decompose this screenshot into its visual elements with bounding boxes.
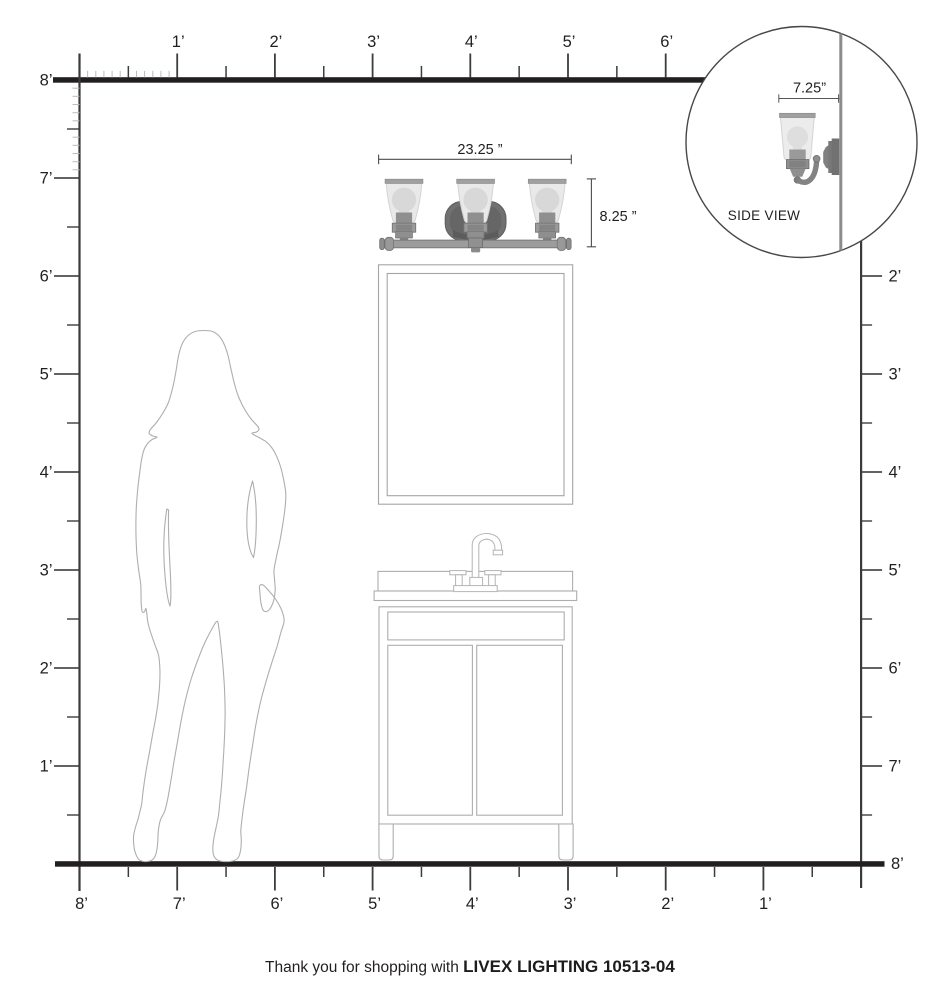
svg-text:2’: 2’ (40, 660, 53, 678)
svg-text:1’: 1’ (40, 758, 53, 776)
svg-text:7’: 7’ (173, 895, 186, 913)
svg-text:3’: 3’ (564, 895, 577, 913)
svg-text:4’: 4’ (40, 464, 53, 482)
svg-text:3’: 3’ (889, 366, 902, 384)
svg-text:6’: 6’ (40, 268, 53, 286)
svg-text:7.25”: 7.25” (793, 81, 826, 97)
svg-text:1’: 1’ (172, 33, 185, 51)
svg-text:SIDE VIEW: SIDE VIEW (728, 208, 800, 223)
svg-text:8’: 8’ (40, 72, 53, 90)
svg-text:4’: 4’ (889, 464, 902, 482)
svg-text:7’: 7’ (889, 758, 902, 776)
svg-text:2’: 2’ (661, 895, 674, 913)
svg-text:23.25 ”: 23.25 ” (457, 142, 502, 158)
svg-text:7’: 7’ (40, 170, 53, 188)
svg-text:3’: 3’ (367, 33, 380, 51)
svg-text:2’: 2’ (269, 33, 282, 51)
svg-text:Thank you for shopping with LI: Thank you for shopping with LIVEX LIGHTI… (265, 957, 675, 976)
svg-text:6’: 6’ (889, 660, 902, 678)
svg-text:5’: 5’ (889, 562, 902, 580)
svg-text:1’: 1’ (759, 895, 772, 913)
svg-text:8.25 ”: 8.25 ” (600, 209, 637, 225)
svg-text:4’: 4’ (465, 33, 478, 51)
svg-text:3’: 3’ (40, 562, 53, 580)
svg-text:6’: 6’ (660, 33, 673, 51)
svg-text:5’: 5’ (368, 895, 381, 913)
svg-text:8’: 8’ (75, 895, 88, 913)
svg-text:6’: 6’ (270, 895, 283, 913)
svg-text:5’: 5’ (40, 366, 53, 384)
svg-text:8’: 8’ (891, 855, 904, 873)
svg-text:2’: 2’ (889, 268, 902, 286)
svg-text:4’: 4’ (466, 895, 479, 913)
svg-text:5’: 5’ (563, 33, 576, 51)
